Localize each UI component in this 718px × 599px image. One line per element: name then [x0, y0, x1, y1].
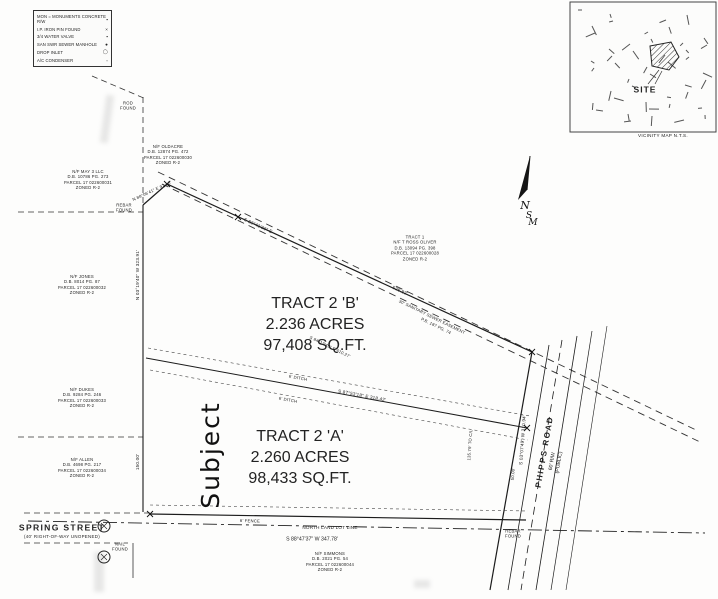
vicinity-caption: VICINITY MAP N.T.S. — [638, 133, 688, 139]
north-arrow-icon — [518, 156, 530, 200]
parcel-label-nw: N/F MAY 3 LLC D.B. 10786 PG. 273 PARCEL … — [64, 169, 112, 191]
parcel-label-west1: N/F JONES D.B. 8014 PG. 87 PARCEL 17 022… — [58, 274, 106, 296]
monument-rebar-found-nw: REBAR FOUND — [116, 203, 132, 214]
parcel-label-west3: N/F ALLEN D.B. 4698 PG. 217 PARCEL 17 02… — [58, 457, 106, 479]
spring-street-row-note: (40' RIGHT-OF-WAY UNOPENED) — [24, 534, 100, 540]
vicinity-map — [570, 2, 716, 132]
subject-annotation: Subject — [195, 401, 228, 508]
fence-label: 6' FENCE — [240, 518, 260, 524]
legend-symbol: ▪ — [106, 17, 108, 22]
legend-symbol: ◯ — [103, 49, 108, 55]
spring-street-label: SPRING STREET — [19, 522, 105, 533]
tract-2b-label: TRACT 2 'B' 2.236 ACRES 97,408 SQ.FT. — [263, 294, 366, 356]
monument-nail-found: NAIL FOUND — [112, 542, 128, 553]
legend-row: 3/4 WATER VALVE▪ — [37, 34, 108, 39]
legend-row: SAN SWR SEWER MANHOLE● — [37, 42, 108, 47]
legend-row: DROP INLET◯ — [37, 49, 108, 55]
legend-row: I.P. IRON PIN FOUND× — [37, 27, 108, 32]
north-arrow-m: M — [528, 218, 537, 230]
bearing-south-line: S 88°47'37" W 347.78' — [286, 537, 338, 544]
parcel-label-tract1: TRACT 1 N/F T ROSS OLIVER D.B. 13094 PG.… — [391, 234, 439, 261]
monument-rod-found: ROD FOUND — [120, 101, 136, 112]
dimension-west-line: 150.00' — [135, 454, 141, 470]
legend-symbol: ▫ — [106, 58, 108, 63]
legend-symbol: × — [105, 27, 108, 32]
vicinity-site-label: SITE — [634, 84, 657, 95]
parcel-label-west2: N/F DUKES D.B. 9284 PG. 246 PARCEL 17 02… — [58, 387, 106, 409]
legend-symbol: ▪ — [106, 34, 108, 39]
land-lot-line — [28, 521, 705, 533]
dimension-50: 50.00' — [510, 468, 516, 481]
parcel-label-south: N/F SIMMONS D.B. 2021 PG. 54 PARCEL 17 0… — [306, 551, 354, 573]
legend-symbol: ● — [105, 42, 108, 47]
tract-2a-label: TRACT 2 'A' 2.260 ACRES 98,433 SQ.FT. — [248, 427, 351, 489]
monument-rebar-found-se: REBAR FOUND — [505, 529, 521, 540]
legend-row: MON = MONUMENTS CONCRETE R/W▪ — [37, 14, 108, 24]
sewer-easement-lines — [158, 172, 700, 442]
bearing-west-line: N 03°19'40" W 323.91' — [135, 250, 141, 300]
legend-box: MON = MONUMENTS CONCRETE R/W▪ I.P. IRON … — [33, 10, 112, 67]
parcel-label-top: N/F OLDACRE D.B. 12874 PG. 472 PARCEL 17… — [144, 144, 192, 166]
legend-row: A/C CONDENSER▫ — [37, 58, 108, 63]
land-lot-line-label: NORTH LAND LOT LINE — [302, 525, 357, 531]
survey-plat-page: MON = MONUMENTS CONCRETE R/W▪ I.P. IRON … — [0, 0, 718, 599]
